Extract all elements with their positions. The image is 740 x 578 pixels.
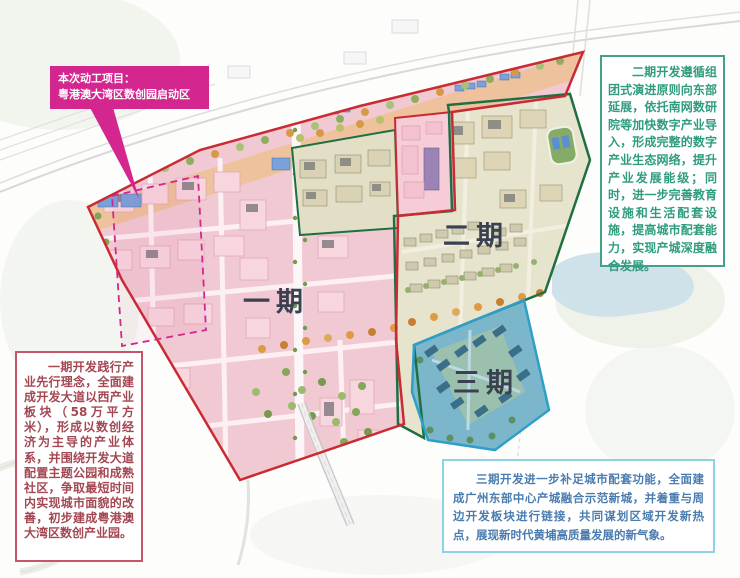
callout-subtitle: 粤港澳大湾区数创园启动区 xyxy=(58,87,201,103)
callout-title: 本次动工项目： xyxy=(58,71,201,87)
phase1-note-text: 一期开发践行产业先行理念，全面建成开发大道以西产业板块（58万平方米），形成以数… xyxy=(24,360,134,541)
callout-tail xyxy=(88,104,139,199)
phase2-note-text: 二期开发遵循组团式演进原则向东部延展，依托南网数研院等加快数字产业导入，形成完整… xyxy=(608,64,717,275)
sports-field xyxy=(546,125,578,165)
phase1-label: 一期 xyxy=(243,287,309,318)
phase3-note: 三期开发进一步补足城市配套功能，全面建成广州东部中心产城融合示范新城，并着重与周… xyxy=(442,459,715,553)
masterplan-figure: 一期 二期 三期 本次动工项目： 粤港澳大湾区数创园启动区 一期开发践行产业先行… xyxy=(0,0,740,578)
pink-jut-block xyxy=(395,112,455,216)
phase3-note-text: 三期开发进一步补足城市配套功能，全面建成广州东部中心产城融合示范新城，并着重与周… xyxy=(453,470,704,544)
tan-block xyxy=(292,130,398,235)
phase2-note: 二期开发遵循组团式演进原则向东部延展，依托南网数研院等加快数字产业导入，形成完整… xyxy=(600,55,725,267)
phase3-label: 三期 xyxy=(453,368,519,399)
construction-callout: 本次动工项目： 粤港澳大湾区数创园启动区 xyxy=(50,66,209,109)
startup-zone-dashed-outline xyxy=(112,176,206,346)
phase2-label: 二期 xyxy=(443,221,509,252)
phase1-note: 一期开发践行产业先行理念，全面建成开发大道以西产业板块（58万平方米），形成以数… xyxy=(15,351,143,562)
